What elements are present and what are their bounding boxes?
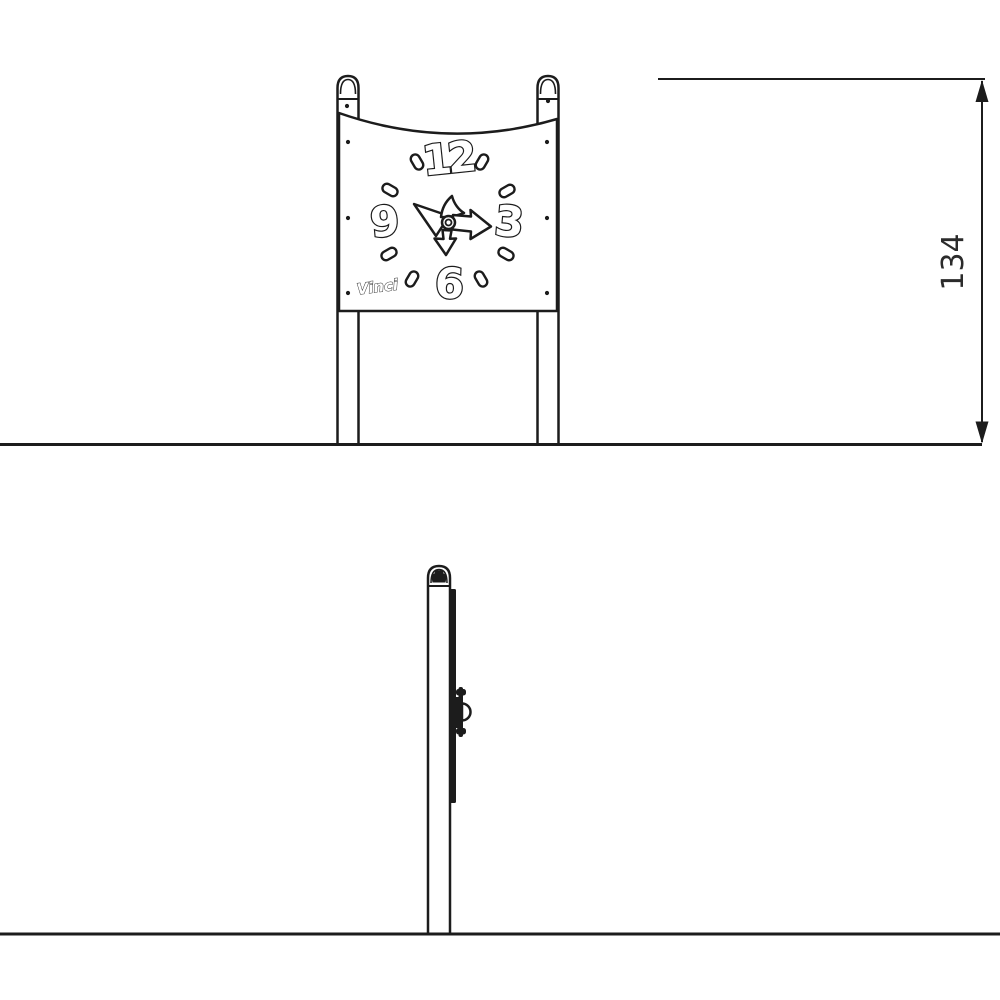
- clock-numeral-9: 9: [368, 196, 401, 247]
- screw-dot: [545, 140, 549, 144]
- clock-numeral-3: 3: [493, 196, 526, 247]
- clock-numeral-6: 6: [434, 259, 465, 309]
- screw-dot: [346, 216, 350, 220]
- dimension-label: 134: [936, 233, 971, 290]
- screw-dot: [545, 216, 549, 220]
- panel-edge-profile: [450, 589, 456, 803]
- screw-dot: [346, 291, 350, 295]
- side-post-outline: [428, 566, 450, 933]
- hub-knob-profile: [462, 704, 471, 721]
- hands-bracket-profile: [456, 697, 460, 728]
- screw-dot: [545, 291, 549, 295]
- technical-drawing-sheet: 12 3 6 9 Vinci 134: [0, 0, 1000, 1000]
- left-post-cap-inner-arc: [341, 80, 356, 95]
- dimension-arrow-down-icon: [976, 422, 989, 444]
- drawing-svg: 12 3 6 9 Vinci 134: [0, 0, 1000, 1000]
- left-post-cap-screw: [345, 104, 349, 108]
- side-view: [428, 566, 471, 933]
- front-view: 12 3 6 9 Vinci: [338, 76, 559, 444]
- right-post-cap-screw: [546, 99, 550, 103]
- right-post-cap-inner-arc: [541, 80, 556, 95]
- clock-numeral-12: 12: [420, 131, 476, 185]
- hands-top-tab: [456, 689, 466, 696]
- hands-bottom-tab: [456, 728, 466, 735]
- screw-dot: [346, 140, 350, 144]
- clock-hub-pin: [446, 220, 452, 226]
- dimension-arrow-up-icon: [976, 80, 989, 102]
- height-dimension: 134: [658, 79, 989, 444]
- hands-side-profile: [456, 687, 471, 737]
- side-post: [428, 566, 450, 933]
